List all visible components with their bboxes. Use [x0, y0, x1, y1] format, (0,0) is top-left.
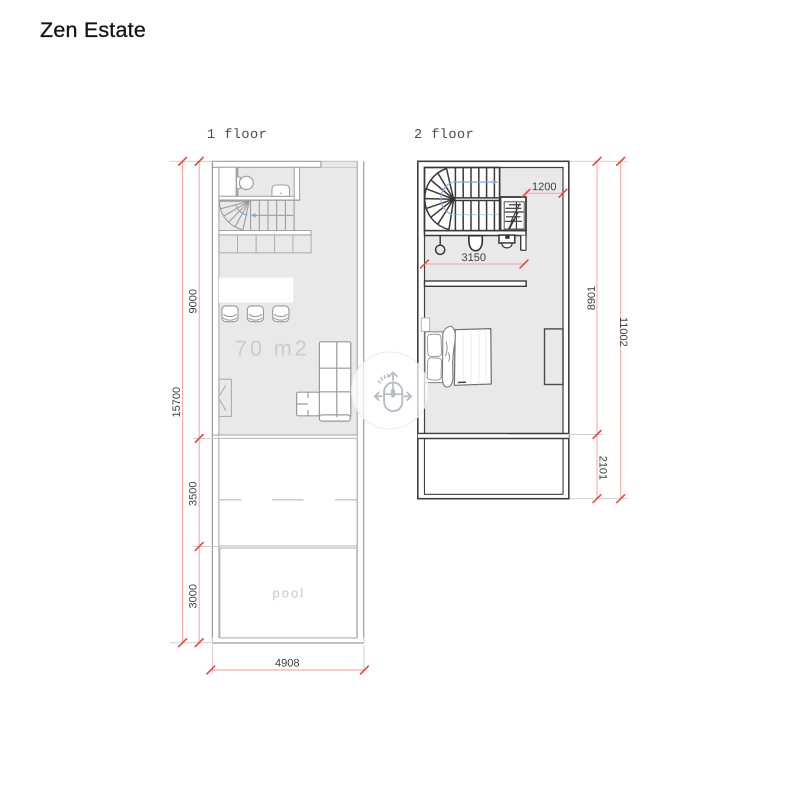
svg-text:1200: 1200: [532, 181, 556, 193]
svg-text:8901: 8901: [586, 286, 598, 310]
svg-text:2 floor: 2 floor: [414, 128, 474, 143]
svg-text:3500: 3500: [188, 482, 200, 506]
svg-text:pool: pool: [272, 586, 305, 601]
svg-text:1 floor: 1 floor: [207, 128, 267, 143]
svg-text:15700: 15700: [171, 387, 183, 418]
svg-text:2101: 2101: [597, 456, 609, 480]
svg-text:11002: 11002: [617, 317, 629, 347]
svg-text:4908: 4908: [275, 658, 299, 670]
svg-text:3150: 3150: [461, 252, 485, 264]
svg-text:3000: 3000: [188, 584, 200, 608]
svg-text:70 m2: 70 m2: [235, 337, 310, 361]
svg-text:9000: 9000: [188, 289, 200, 313]
